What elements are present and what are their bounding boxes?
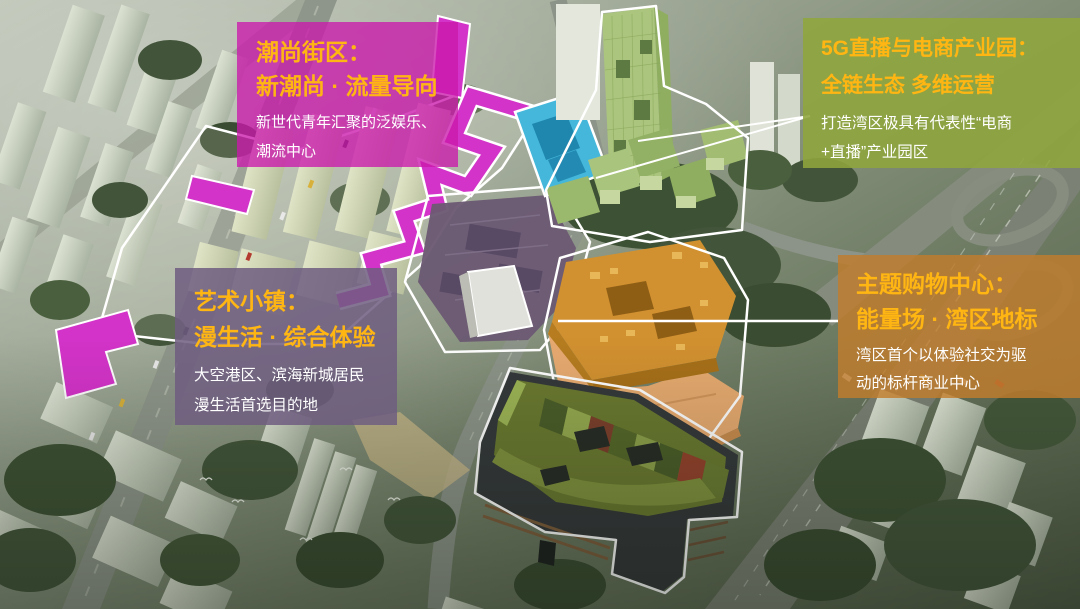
title-line: 潮尚街区： [256, 35, 448, 69]
callout-fashion-street: 潮尚街区： 新潮尚 · 流量导向 新世代青年汇聚的泛娱乐、 潮流中心 [237, 22, 458, 167]
title-line: 新潮尚 · 流量导向 [256, 69, 448, 103]
callout-art-town: 艺术小镇： 漫生活 · 综合体验 大空港区、滨海新城居民 漫生活首选目的地 [175, 268, 397, 425]
body-line: 打造湾区极具有代表性“电商 [821, 109, 1072, 138]
callout-ecommerce-park: 5G直播与电商产业园： 全链生态 多维运营 打造湾区极具有代表性“电商 +直播”… [803, 18, 1080, 168]
callout-fashion-street-title: 潮尚街区： 新潮尚 · 流量导向 [256, 35, 448, 103]
slide: 潮尚街区： 新潮尚 · 流量导向 新世代青年汇聚的泛娱乐、 潮流中心 5G直播与… [0, 0, 1080, 609]
body-line: 潮流中心 [256, 137, 448, 166]
callout-shopping-center: 主题购物中心： 能量场 · 湾区地标 湾区首个以体验社交为驱 动的标杆商业中心 [838, 255, 1080, 398]
callout-ecommerce-park-title: 5G直播与电商产业园： 全链生态 多维运营 [821, 30, 1072, 104]
callout-art-town-title: 艺术小镇： 漫生活 · 综合体验 [194, 283, 389, 355]
body-line: 大空港区、滨海新城居民 [194, 361, 389, 391]
title-line: 主题购物中心： [856, 267, 1072, 302]
title-line: 5G直播与电商产业园： [821, 30, 1072, 67]
callout-shopping-center-title: 主题购物中心： 能量场 · 湾区地标 [856, 267, 1072, 337]
title-line: 艺术小镇： [194, 283, 389, 319]
body-line: 动的标杆商业中心 [856, 370, 1072, 398]
body-line: 新世代青年汇聚的泛娱乐、 [256, 108, 448, 137]
title-line: 全链生态 多维运营 [821, 67, 1072, 104]
title-line: 能量场 · 湾区地标 [856, 302, 1072, 337]
callout-ecommerce-park-body: 打造湾区极具有代表性“电商 +直播”产业园区 [821, 109, 1072, 167]
body-line: 漫生活首选目的地 [194, 391, 389, 421]
callout-fashion-street-body: 新世代青年汇聚的泛娱乐、 潮流中心 [256, 108, 448, 166]
title-line: 漫生活 · 综合体验 [194, 319, 389, 355]
body-line: +直播”产业园区 [821, 138, 1072, 167]
body-line: 湾区首个以体验社交为驱 [856, 342, 1072, 370]
callout-art-town-body: 大空港区、滨海新城居民 漫生活首选目的地 [194, 361, 389, 421]
callout-shopping-center-body: 湾区首个以体验社交为驱 动的标杆商业中心 [856, 342, 1072, 398]
